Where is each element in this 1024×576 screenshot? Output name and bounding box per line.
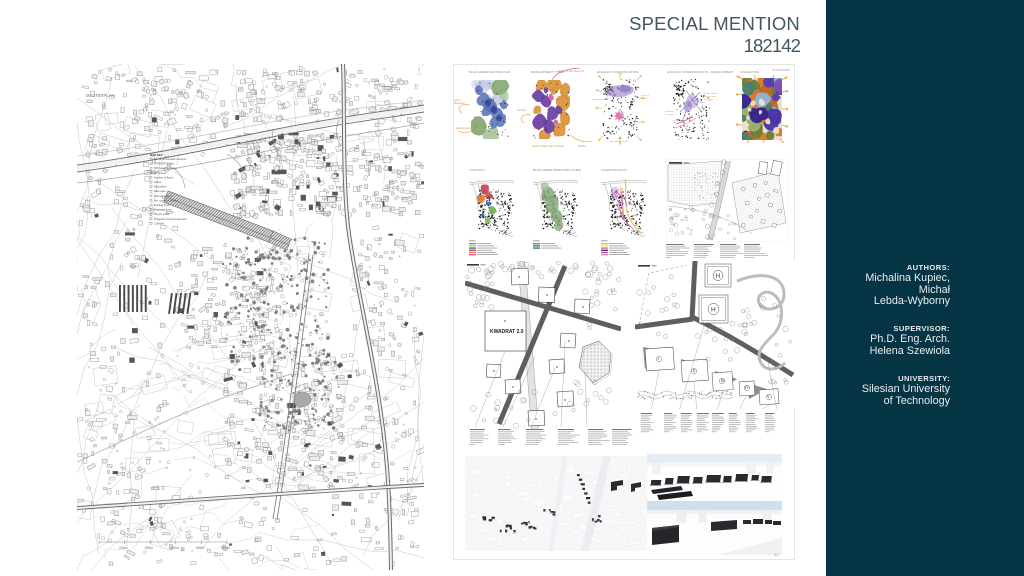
svg-text:V: V [767,395,770,399]
svg-text:Bicycle paths: Bicycle paths [154,212,170,216]
svg-text:MAP KEY: MAP KEY [150,153,163,157]
svg-text:BPI-based buildings: BPI-based buildings [154,166,178,170]
svg-text:Site of presumable He-Dera: Site of presumable He-Dera [154,157,187,161]
svg-text:H: H [711,307,716,314]
svg-text:Number of floors: Number of floors [154,175,174,179]
svg-text:IV: IV [745,386,749,390]
svg-text:Internal gardens: Internal gardens [154,194,173,198]
svg-text:Ver. comerce artifact: Ver. comerce artifact [154,198,178,202]
svg-text:500m: 500m [221,546,230,550]
svg-text:CONNECTION(s): CONNECTION(s) [154,162,175,166]
svg-text:Proposed comerce avenues: Proposed comerce avenues [154,217,187,221]
svg-text:Proposed trees: Proposed trees [154,208,172,212]
svg-text:MASTERPLAN: MASTERPLAN [86,93,114,98]
svg-text:Entrances: Entrances [154,171,166,175]
svg-text:100m: 100m [119,546,128,550]
svg-text:1/2: 1/2 [410,545,415,549]
svg-text:Shops: Shops [154,180,162,184]
svg-text:300m: 300m [170,546,179,550]
svg-text:KWADRAT 2.0: KWADRAT 2.0 [490,329,524,335]
svg-text:Recreation: Recreation [154,185,167,189]
svg-text:200m: 200m [145,546,154,550]
svg-text:400m: 400m [196,546,205,550]
svg-text:Main axes: Main axes [154,189,167,193]
svg-text:Collectiv: Collectiv [154,221,165,225]
svg-text:Existing trees: Existing trees [154,203,170,207]
svg-text:H: H [716,274,720,280]
